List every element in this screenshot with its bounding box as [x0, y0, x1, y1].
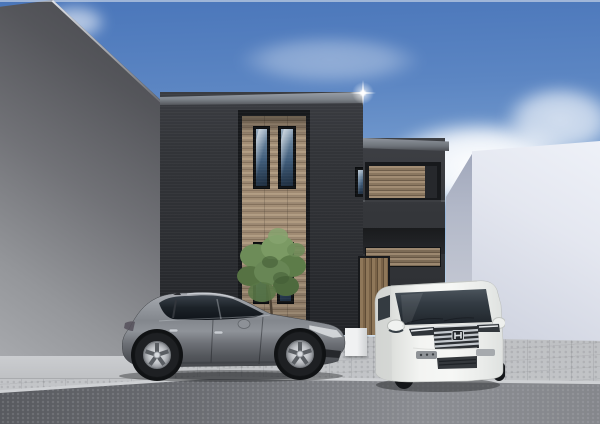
cloud	[200, 25, 460, 95]
image-top-edge-light	[0, 0, 600, 2]
silver-hatchback: silver hatchback parked side-on facing r…	[113, 291, 350, 383]
front-door-handle	[214, 331, 223, 334]
parapet-coping	[160, 92, 363, 105]
rear-door-handle	[169, 329, 178, 332]
sun-glint	[350, 80, 376, 106]
side-mirror	[238, 320, 250, 329]
upper-window-right	[279, 127, 295, 188]
open-window-gap	[425, 166, 437, 198]
wing-roof-fascia	[363, 138, 449, 151]
front-wheel	[274, 328, 326, 380]
wood-louver-slats	[369, 166, 425, 198]
van-side-window	[378, 295, 390, 321]
right-headlight	[477, 324, 500, 332]
architectural-rendering: silver hatchback parked side-on facing r…	[0, 0, 600, 424]
rear-wheel	[131, 329, 183, 381]
window-glass	[256, 129, 267, 186]
right-led-strip	[479, 326, 498, 327]
upper-window-left	[254, 127, 269, 188]
h-emblem	[452, 331, 464, 341]
white-minivan: white minivan facing the street	[371, 279, 505, 395]
right-foglight-insert	[476, 349, 495, 356]
second-floor-louver-band	[365, 162, 441, 202]
lower-intake	[437, 356, 477, 369]
window-glass	[281, 129, 293, 186]
balcony-parapet-top-edge	[363, 200, 445, 202]
